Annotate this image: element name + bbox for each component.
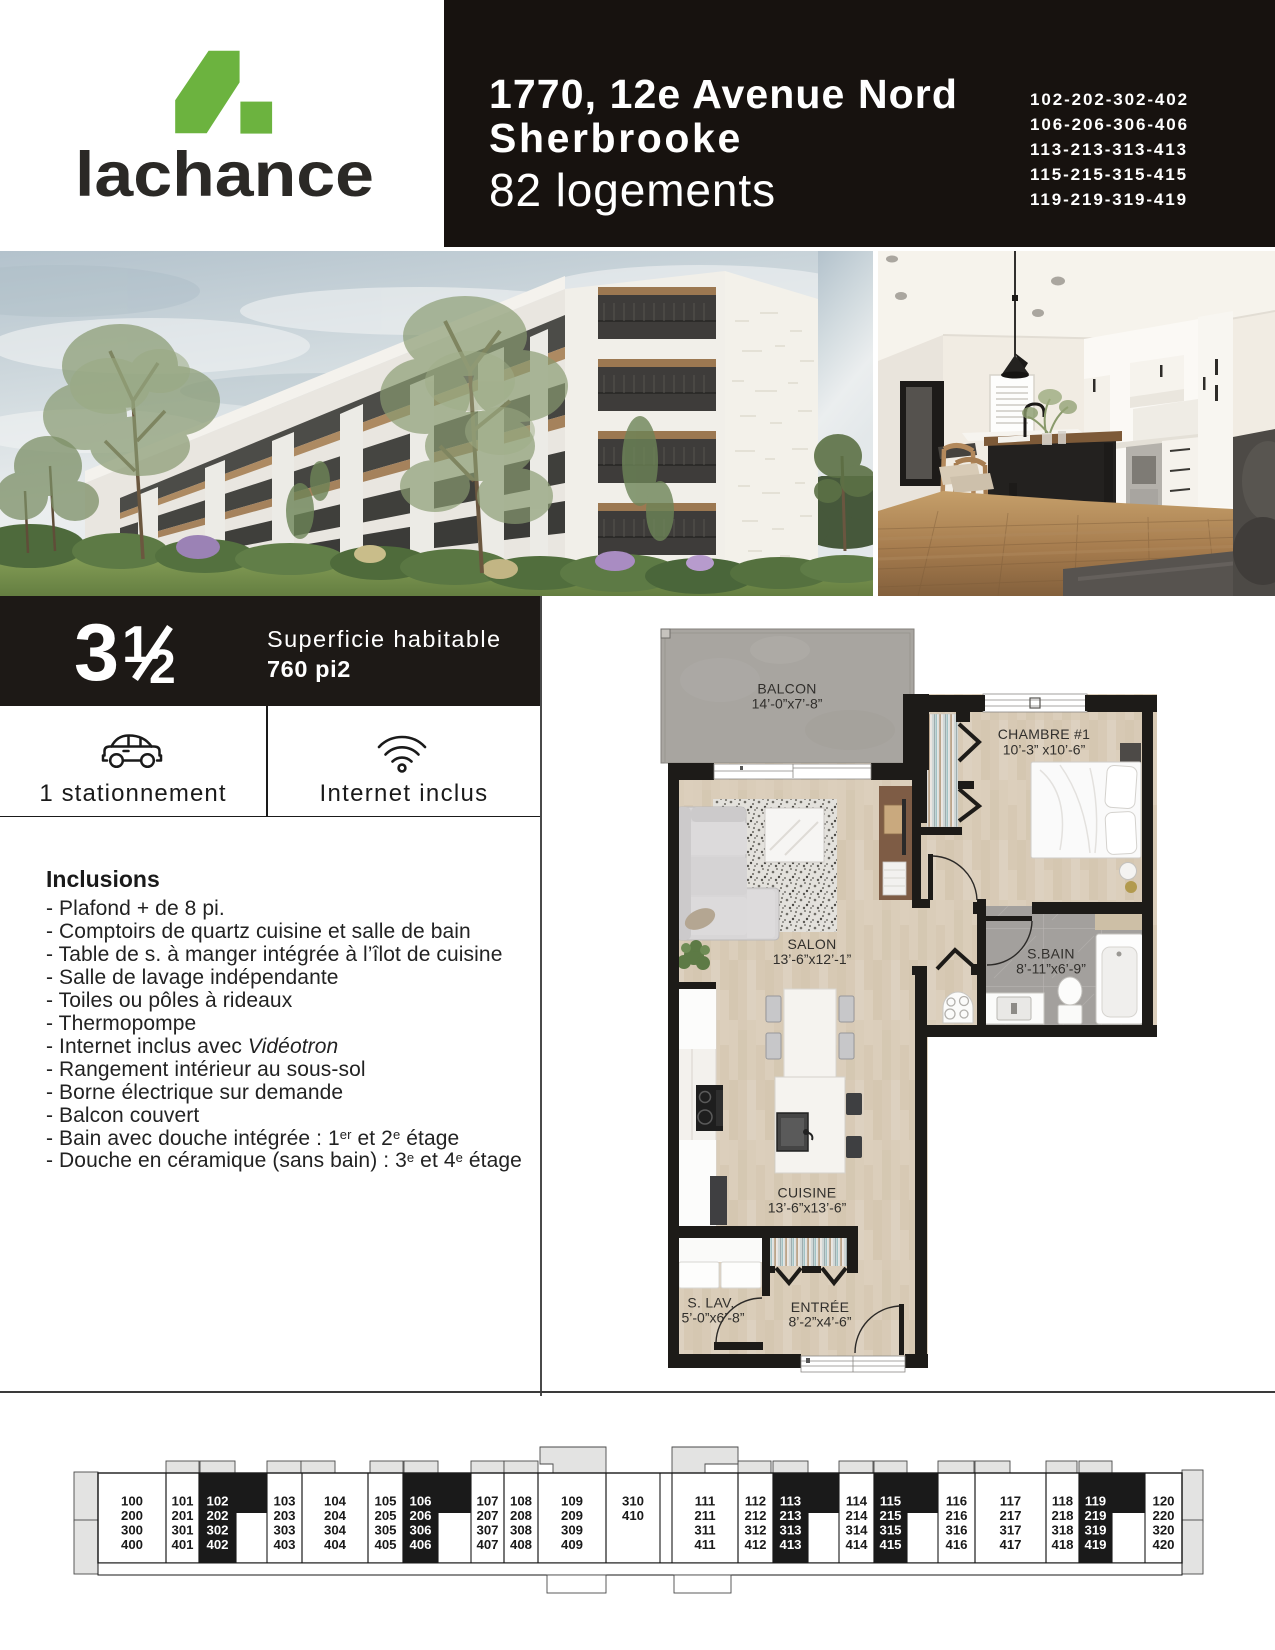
svg-text:117: 117 bbox=[1000, 1494, 1021, 1509]
svg-text:215: 215 bbox=[879, 1508, 901, 1523]
svg-text:202: 202 bbox=[206, 1508, 228, 1523]
svg-text:219: 219 bbox=[1084, 1508, 1106, 1523]
svg-text:311: 311 bbox=[694, 1523, 715, 1538]
svg-text:115: 115 bbox=[880, 1494, 901, 1509]
svg-text:S. LAV.: S. LAV. bbox=[687, 1295, 734, 1311]
svg-text:420: 420 bbox=[1152, 1537, 1174, 1552]
svg-text:305: 305 bbox=[374, 1523, 396, 1538]
svg-text:419: 419 bbox=[1084, 1537, 1106, 1552]
svg-text:314: 314 bbox=[845, 1523, 868, 1538]
svg-text:309: 309 bbox=[561, 1523, 583, 1538]
svg-text:201: 201 bbox=[171, 1508, 193, 1523]
svg-text:lachance: lachance bbox=[75, 140, 374, 210]
svg-text:119: 119 bbox=[1085, 1494, 1106, 1509]
svg-text:200: 200 bbox=[121, 1508, 143, 1523]
svg-text:406: 406 bbox=[409, 1537, 431, 1552]
svg-text:315: 315 bbox=[879, 1523, 901, 1538]
svg-text:102: 102 bbox=[206, 1494, 228, 1509]
svg-text:109: 109 bbox=[561, 1494, 583, 1509]
svg-text:SALON: SALON bbox=[788, 936, 837, 952]
svg-text:BALCON: BALCON bbox=[757, 681, 816, 697]
svg-text:318: 318 bbox=[1051, 1523, 1073, 1538]
svg-text:107: 107 bbox=[476, 1494, 498, 1509]
svg-text:412: 412 bbox=[744, 1537, 766, 1552]
svg-text:CUISINE: CUISINE bbox=[778, 1185, 837, 1201]
svg-text:206: 206 bbox=[409, 1508, 431, 1523]
svg-text:207: 207 bbox=[476, 1508, 498, 1523]
svg-text:111: 111 bbox=[695, 1494, 716, 1509]
svg-text:306: 306 bbox=[409, 1523, 431, 1538]
svg-text:410: 410 bbox=[622, 1508, 644, 1523]
svg-text:401: 401 bbox=[171, 1537, 193, 1552]
svg-text:319: 319 bbox=[1084, 1523, 1106, 1538]
svg-text:213: 213 bbox=[779, 1508, 801, 1523]
svg-text:10’-3” x10’-6”: 10’-3” x10’-6” bbox=[1003, 742, 1086, 758]
svg-text:CHAMBRE #1: CHAMBRE #1 bbox=[998, 726, 1090, 742]
svg-text:301: 301 bbox=[171, 1523, 193, 1538]
svg-text:204: 204 bbox=[324, 1508, 347, 1523]
svg-text:106: 106 bbox=[409, 1494, 431, 1509]
svg-text:205: 205 bbox=[374, 1508, 396, 1523]
svg-text:104: 104 bbox=[324, 1494, 347, 1509]
svg-text:418: 418 bbox=[1051, 1537, 1073, 1552]
svg-text:108: 108 bbox=[510, 1494, 532, 1509]
svg-text:307: 307 bbox=[476, 1523, 498, 1538]
svg-text:103: 103 bbox=[273, 1494, 295, 1509]
svg-text:216: 216 bbox=[945, 1508, 967, 1523]
svg-text:5’-0”x6’-8”: 5’-0”x6’-8” bbox=[681, 1310, 744, 1326]
svg-text:14’-0”x7’-8”: 14’-0”x7’-8” bbox=[752, 696, 823, 712]
svg-text:408: 408 bbox=[510, 1537, 532, 1552]
svg-text:112: 112 bbox=[745, 1494, 766, 1509]
svg-text:302: 302 bbox=[206, 1523, 228, 1538]
svg-text:217: 217 bbox=[999, 1508, 1021, 1523]
svg-text:220: 220 bbox=[1152, 1508, 1174, 1523]
svg-text:13’-6”x12’-1”: 13’-6”x12’-1” bbox=[773, 951, 852, 967]
svg-text:203: 203 bbox=[273, 1508, 295, 1523]
svg-text:113: 113 bbox=[780, 1494, 801, 1509]
svg-text:13’-6”x13’-6”: 13’-6”x13’-6” bbox=[768, 1200, 847, 1216]
svg-text:308: 308 bbox=[510, 1523, 532, 1538]
svg-text:116: 116 bbox=[946, 1494, 967, 1509]
svg-text:118: 118 bbox=[1052, 1494, 1073, 1509]
svg-text:407: 407 bbox=[476, 1537, 498, 1552]
svg-text:316: 316 bbox=[945, 1523, 967, 1538]
svg-text:105: 105 bbox=[374, 1494, 396, 1509]
svg-text:414: 414 bbox=[845, 1537, 868, 1552]
svg-text:120: 120 bbox=[1152, 1494, 1174, 1509]
svg-text:304: 304 bbox=[324, 1523, 347, 1538]
svg-text:214: 214 bbox=[845, 1508, 868, 1523]
svg-text:300: 300 bbox=[121, 1523, 143, 1538]
svg-text:404: 404 bbox=[324, 1537, 347, 1552]
svg-text:416: 416 bbox=[945, 1537, 967, 1552]
svg-text:310: 310 bbox=[622, 1494, 644, 1509]
svg-text:211: 211 bbox=[694, 1508, 715, 1523]
svg-text:320: 320 bbox=[1152, 1523, 1174, 1538]
svg-text:208: 208 bbox=[510, 1508, 532, 1523]
svg-text:415: 415 bbox=[879, 1537, 901, 1552]
svg-text:417: 417 bbox=[999, 1537, 1021, 1552]
svg-text:317: 317 bbox=[999, 1523, 1021, 1538]
svg-text:100: 100 bbox=[121, 1494, 143, 1509]
svg-text:402: 402 bbox=[206, 1537, 228, 1552]
svg-text:303: 303 bbox=[273, 1523, 295, 1538]
svg-text:218: 218 bbox=[1051, 1508, 1073, 1523]
svg-text:413: 413 bbox=[779, 1537, 801, 1552]
svg-text:403: 403 bbox=[273, 1537, 295, 1552]
svg-text:8’-2”x4’-6”: 8’-2”x4’-6” bbox=[788, 1314, 851, 1330]
svg-text:312: 312 bbox=[744, 1523, 766, 1538]
svg-text:400: 400 bbox=[121, 1537, 143, 1552]
svg-text:114: 114 bbox=[846, 1494, 868, 1509]
svg-text:212: 212 bbox=[744, 1508, 766, 1523]
svg-text:405: 405 bbox=[374, 1537, 396, 1552]
svg-text:101: 101 bbox=[171, 1494, 193, 1509]
svg-text:411: 411 bbox=[694, 1537, 715, 1552]
svg-text:S.BAIN: S.BAIN bbox=[1027, 946, 1075, 962]
svg-text:409: 409 bbox=[561, 1537, 583, 1552]
svg-text:209: 209 bbox=[561, 1508, 583, 1523]
svg-text:8’-11”x6’-9”: 8’-11”x6’-9” bbox=[1016, 961, 1086, 977]
svg-text:313: 313 bbox=[779, 1523, 801, 1538]
